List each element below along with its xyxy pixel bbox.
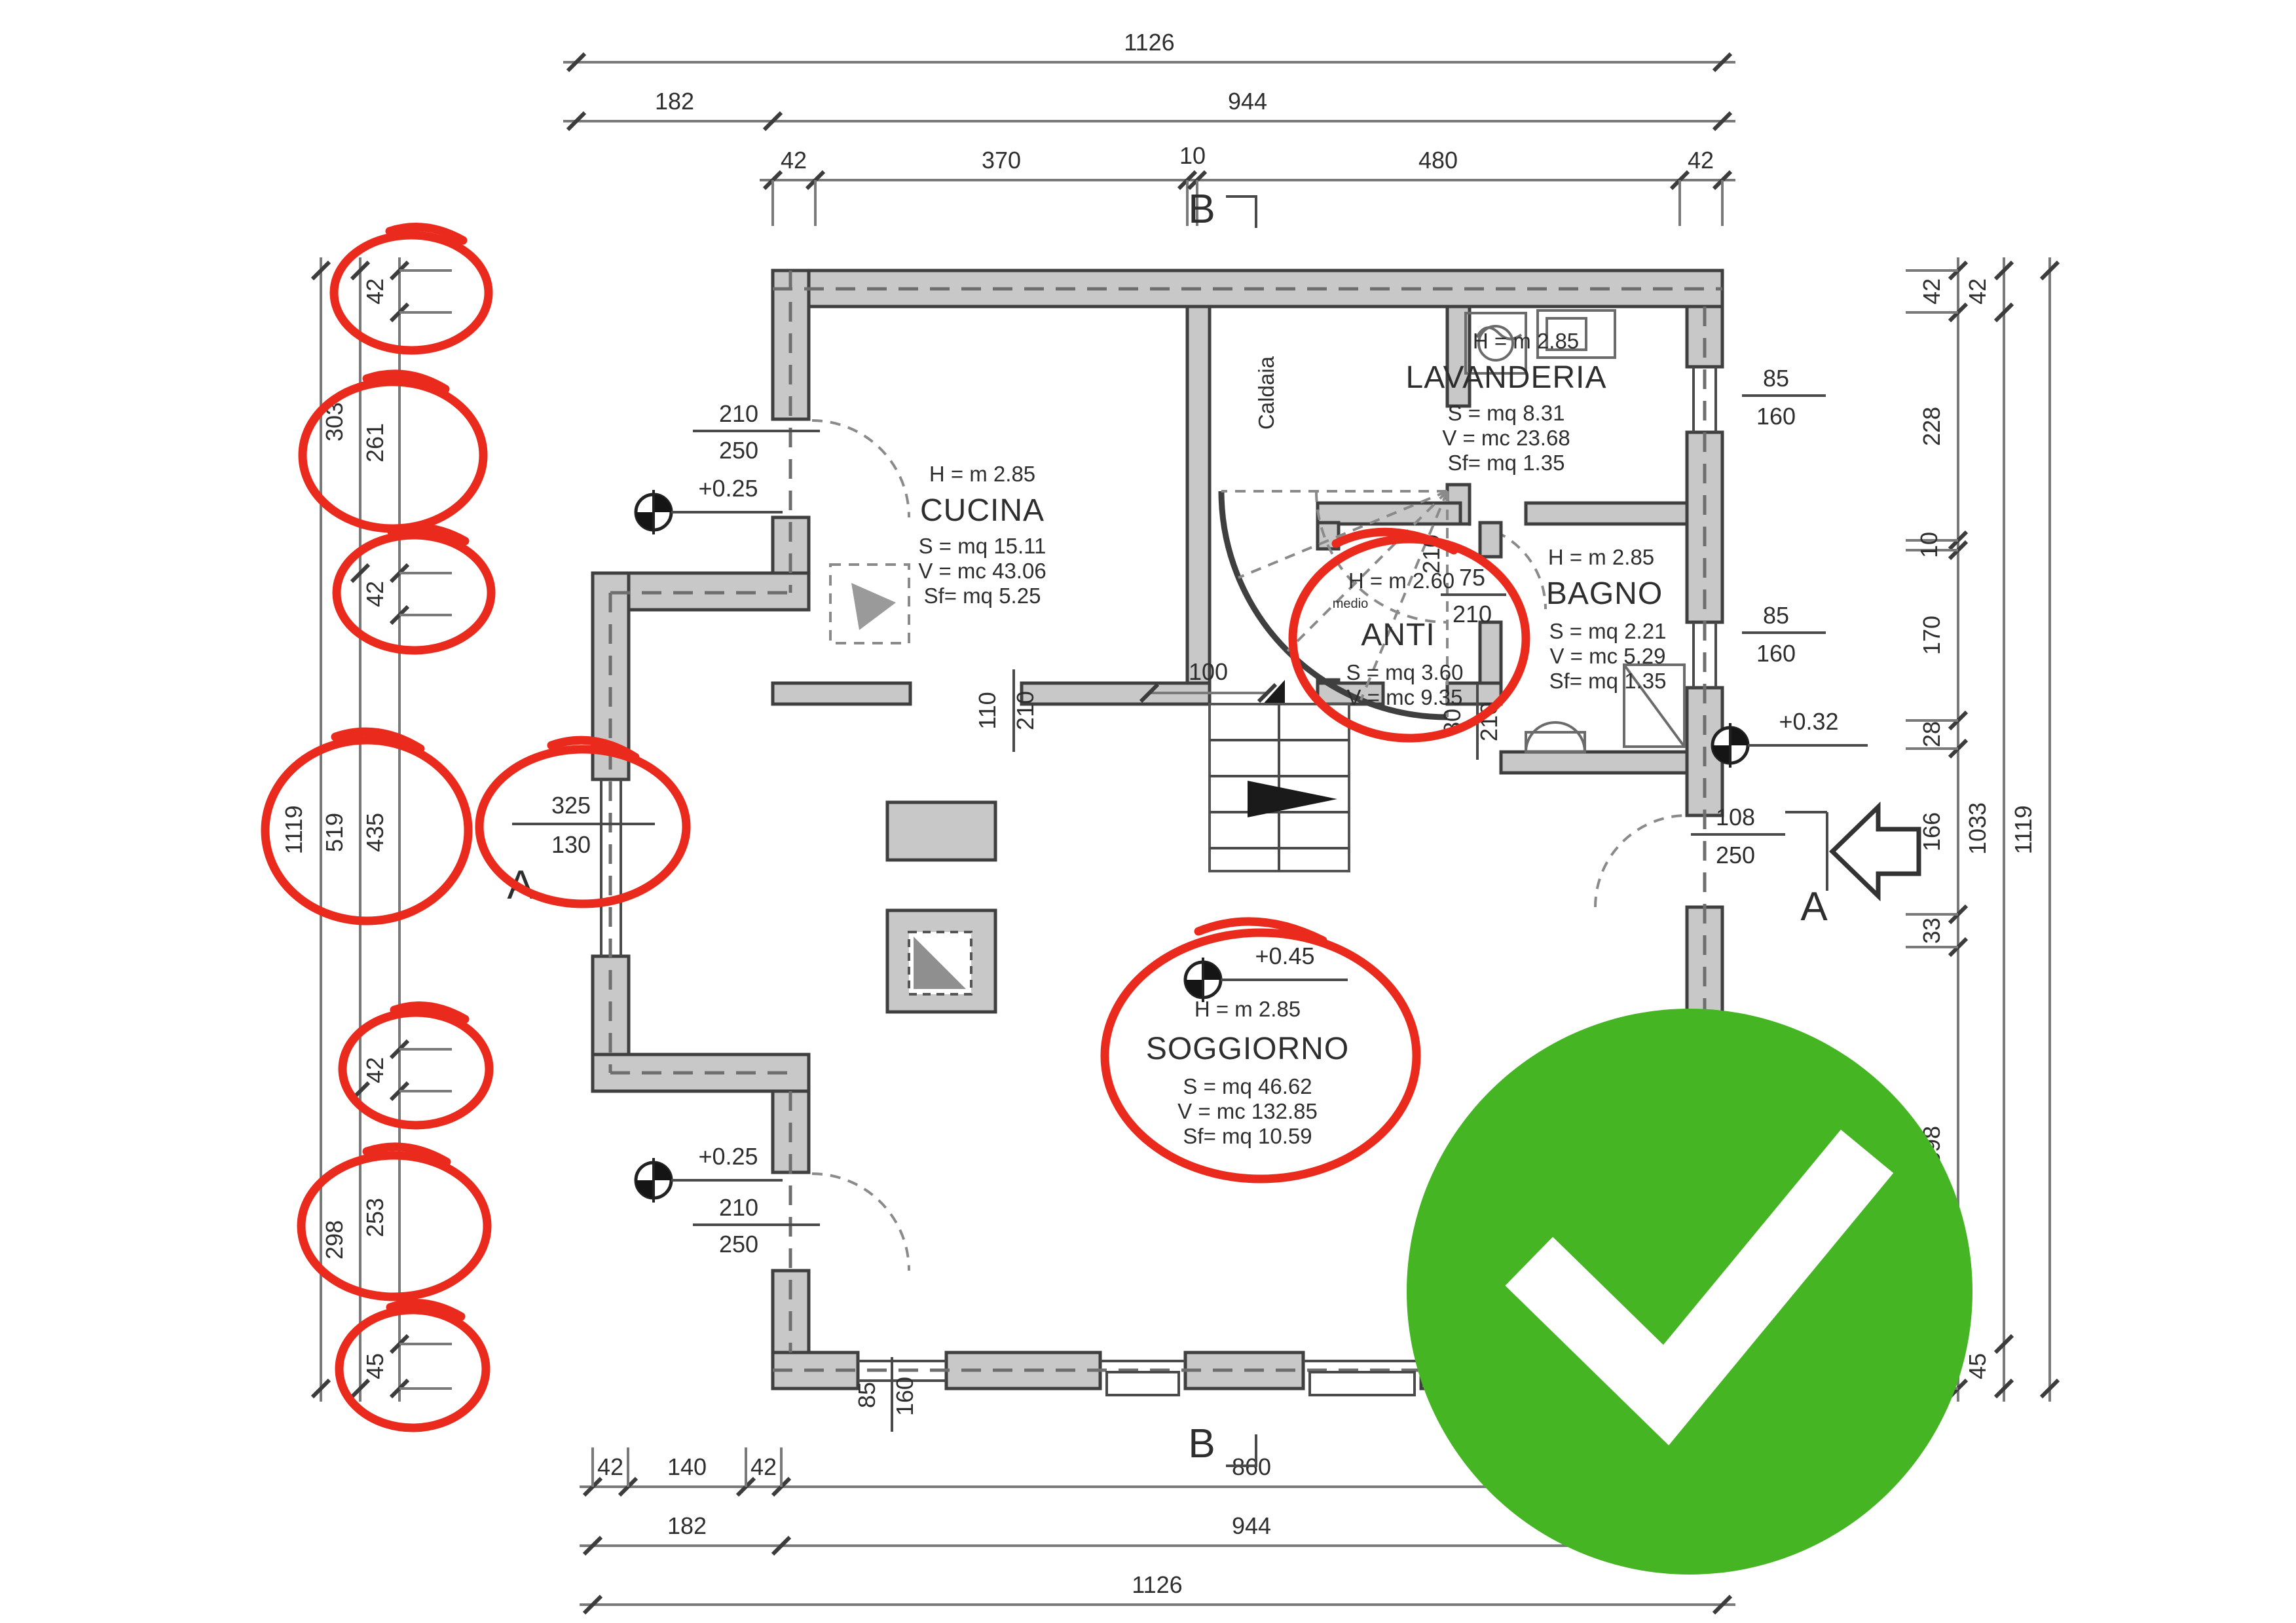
dim-left-i435: 435 [361,813,388,852]
dim-wr-upper-160: 160 [1756,403,1796,430]
cucina-name: CUCINA [920,493,1045,528]
dim-right-i170: 170 [1918,616,1945,655]
dim-left-i253: 253 [361,1198,388,1237]
anti-note: medio [1333,597,1368,611]
room-anti: H = m 2.60 medio ANTI S = mq 3.60 V = mc… [1333,569,1464,709]
top-dimension-line-2 [563,113,1735,130]
cucina-sliding-door-arrow [830,565,909,643]
dim-top-42b: 42 [1688,147,1714,174]
level-upper-left: +0.25 [636,475,783,534]
level-lower-left: +0.25 [636,1143,783,1203]
dim-entry-108: 108 [1716,804,1755,830]
green-check-badge [1407,1009,1972,1575]
soggiorno-sf: Sf= mq 10.59 [1183,1124,1312,1148]
dim-right-i28: 28 [1918,721,1945,747]
dim-cucina-210: 210 [1012,691,1039,730]
red-circle-325-130 [479,740,686,904]
bagno-height: H = m 2.85 [1548,545,1654,569]
bottom-dimension-line-3 [580,1596,1735,1613]
dim-left-i42c: 42 [361,1057,388,1083]
bagno-s: S = mq 2.21 [1549,619,1667,643]
room-lavanderia: H = m 2.85 LAVANDERIA S = mq 8.31 V = mc… [1406,329,1607,475]
level-right-value: +0.32 [1779,708,1838,735]
dim-right-m45: 45 [1964,1353,1991,1379]
soggiorno-name: SOGGIORNO [1146,1032,1349,1066]
soggiorno-s: S = mq 46.62 [1183,1074,1312,1098]
dim-bagno-210: 210 [1453,601,1492,627]
dim-bot-42b: 42 [750,1453,777,1480]
level-lower-left-value: +0.25 [698,1143,758,1170]
dim-right-i228: 228 [1918,407,1945,446]
dim-top-944: 944 [1228,88,1267,115]
right-dimension-outer [2041,257,2058,1402]
dim-top-total: 1126 [1124,29,1174,56]
dim-left-i42a: 42 [361,278,388,305]
red-circle-left-42a [334,227,489,350]
dim-detail-130: 130 [551,831,591,858]
dim-ul-door-250: 250 [719,437,758,464]
dim-ll-door-250: 250 [719,1231,758,1258]
floor-plan-drawing: 1126 182 944 42 370 10 480 42 42 140 42 … [0,0,2296,1623]
dim-top-182: 182 [655,88,694,115]
level-upper-left-value: +0.25 [698,475,758,502]
lavanderia-height: H = m 2.85 [1473,329,1579,353]
lavanderia-v: V = mc 23.68 [1442,426,1570,450]
dim-wb-160: 160 [891,1377,918,1416]
dim-left-m298: 298 [321,1220,348,1259]
soggiorno-stove [887,802,995,1012]
dim-bagno-75: 75 [1459,564,1485,591]
left-dimension-inner [391,257,452,1402]
dim-right-i166: 166 [1918,812,1945,851]
soggiorno-v: V = mc 132.85 [1177,1099,1318,1123]
lavanderia-s: S = mq 8.31 [1448,401,1565,425]
dim-entry-250: 250 [1716,842,1755,868]
dim-right-i42: 42 [1918,278,1945,305]
dim-right-m42: 42 [1964,278,1991,305]
level-right: +0.32 [1713,708,1868,768]
cucina-s: S = mq 15.11 [919,534,1046,558]
section-a-arrow [1832,807,1919,896]
red-circle-left-303-261 [303,374,483,529]
section-a-right: A [1800,884,1828,929]
dim-wb-85: 85 [853,1382,880,1408]
dim-detail-325: 325 [551,792,591,819]
dim-right-outer: 1119 [2010,806,2037,855]
dim-bot-182: 182 [667,1512,707,1539]
dim-left-i42b: 42 [361,581,388,607]
dim-stair-100: 100 [1189,658,1228,685]
dim-left-i261: 261 [361,423,388,462]
dim-left-m519: 519 [321,813,348,852]
dim-right-m1033: 1033 [1964,802,1991,855]
dim-bot-944: 944 [1232,1512,1271,1539]
dim-top-370: 370 [982,147,1021,174]
top-dimension-line-1 [563,54,1735,71]
bagno-name: BAGNO [1546,576,1663,611]
anti-s: S = mq 3.60 [1346,660,1464,684]
floor-plan-page: 1126 182 944 42 370 10 480 42 42 140 42 … [0,0,2296,1623]
dim-right-i33: 33 [1918,918,1945,944]
anti-v: V = mc 9.35 [1346,685,1462,709]
dim-bot-140: 140 [667,1453,707,1480]
dim-ll-door-210: 210 [719,1194,758,1221]
dim-wr-lower-160: 160 [1756,640,1796,667]
cucina-sf: Sf= mq 5.25 [924,584,1041,608]
soggiorno-height: H = m 2.85 [1194,997,1301,1021]
caldaia-label: Caldaia [1254,356,1278,430]
bagno-v: V = mc 5.29 [1549,644,1665,668]
dim-bot-42a: 42 [597,1453,623,1480]
dim-ul-door-210: 210 [719,400,758,427]
dim-wr-lower-85: 85 [1763,602,1789,629]
dim-left-outer: 1119 [280,806,307,855]
dim-top-42a: 42 [781,147,807,174]
dim-cucina-110: 110 [974,692,1001,729]
section-b-top: B [1188,187,1215,232]
lavanderia-name: LAVANDERIA [1406,360,1607,395]
room-cucina: H = m 2.85 CUCINA S = mq 15.11 V = mc 43… [918,462,1046,608]
dim-top-480: 480 [1418,147,1458,174]
cucina-height: H = m 2.85 [929,462,1035,486]
room-soggiorno: +0.45 H = m 2.85 SOGGIORNO S = mq 46.62 … [1146,942,1349,1148]
cucina-v: V = mc 43.06 [918,559,1046,583]
bagno-sf: Sf= mq 1.35 [1549,669,1667,693]
section-b-bottom: B [1188,1421,1215,1466]
top-dimension-line-3 [760,172,1735,226]
room-bagno: H = m 2.85 BAGNO S = mq 2.21 V = mc 5.29… [1546,545,1667,693]
dim-top-10: 10 [1179,142,1206,169]
dim-wr-upper-85: 85 [1763,365,1789,392]
lavanderia-sf: Sf= mq 1.35 [1448,451,1565,475]
dim-bot-total: 1126 [1132,1571,1182,1598]
green-circle [1407,1009,1972,1575]
soggiorno-level: +0.45 [1255,942,1314,969]
dim-left-i45: 45 [361,1353,388,1379]
dim-right-i10: 10 [1916,532,1942,558]
anti-name: ANTI [1361,618,1435,652]
